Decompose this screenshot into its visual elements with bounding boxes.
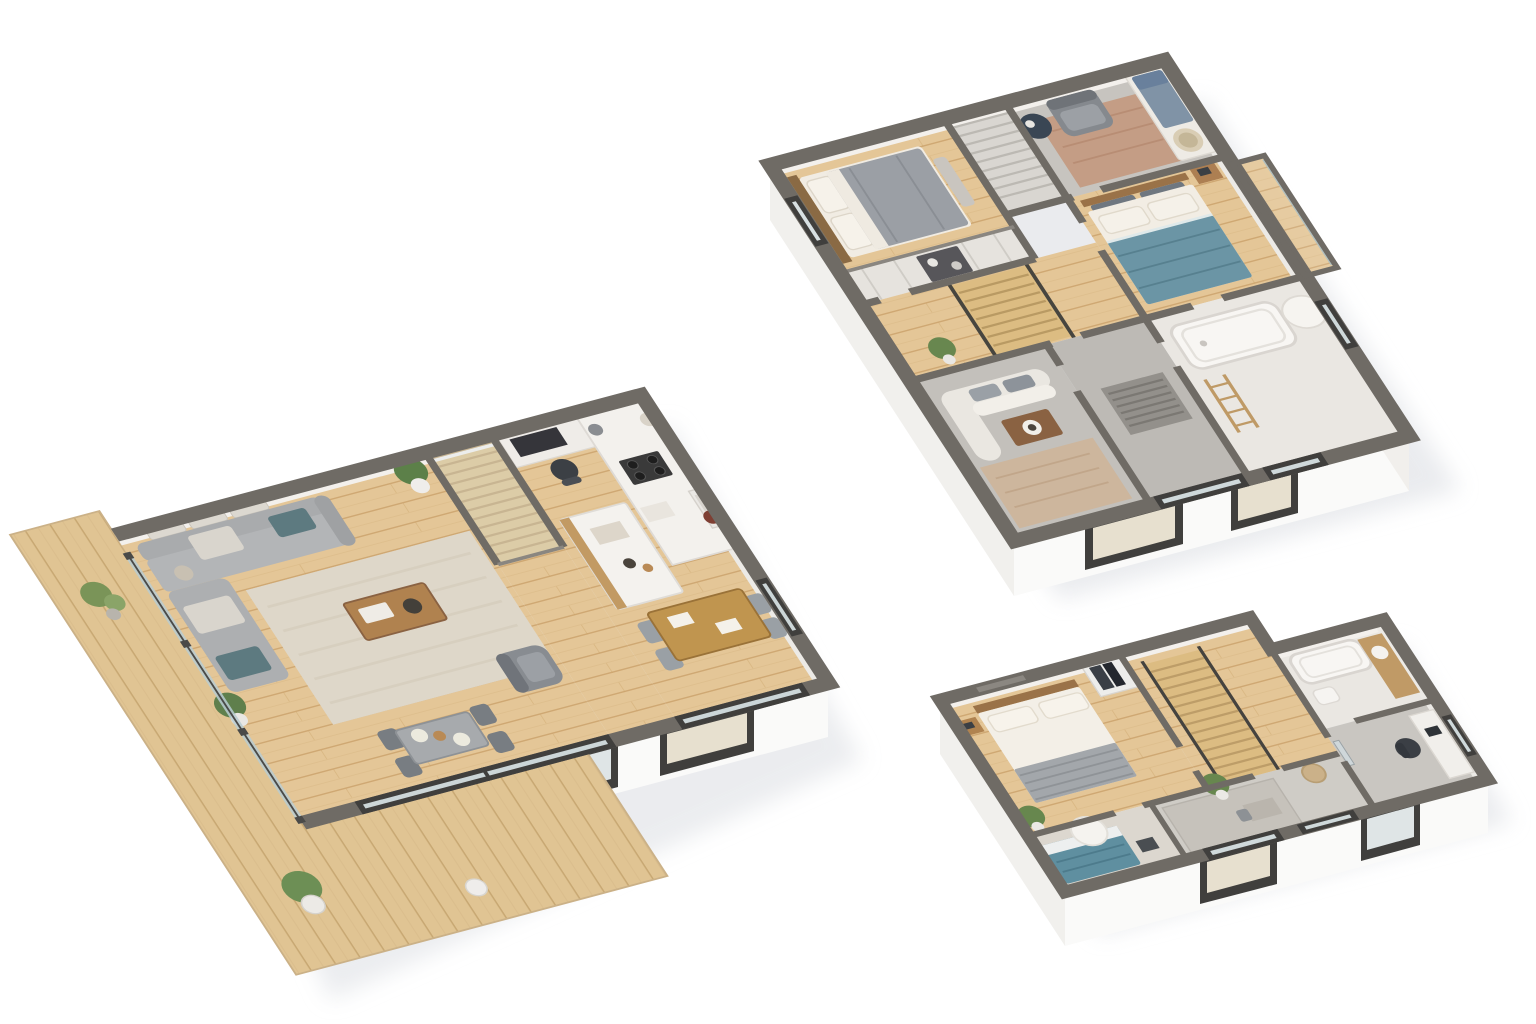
isometric-floorplans-svg: Three 3D isometric cutaway floor plans o… xyxy=(0,0,1536,1024)
floor-plans-canvas: Three 3D isometric cutaway floor plans o… xyxy=(0,0,1536,1024)
floor-plan-ground: ground-floor-plan xyxy=(10,371,912,975)
floor-plan-loft: loft-floor-plan xyxy=(940,588,1488,947)
ground-plan xyxy=(10,371,912,975)
